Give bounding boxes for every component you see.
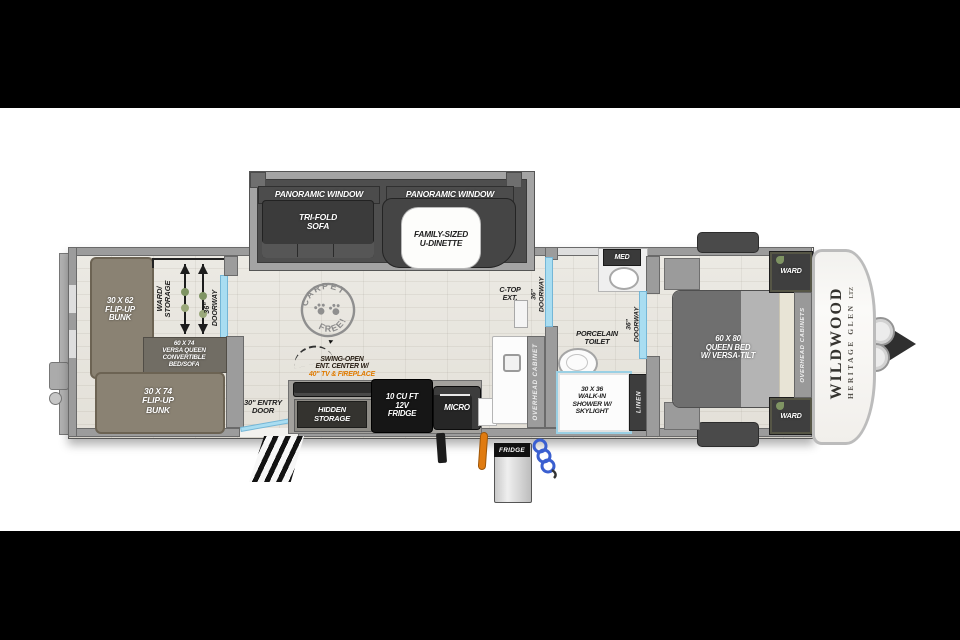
top-letterbox-band	[0, 0, 960, 108]
rear-wall-window-1	[69, 285, 76, 313]
rear-jack-wheel	[49, 392, 62, 405]
ward-plant-icon	[776, 402, 784, 410]
queen-bed	[672, 290, 798, 408]
entry-steps	[249, 436, 307, 482]
kitchen-counter	[492, 336, 529, 424]
hanging-clothes-icon	[196, 262, 210, 336]
bath-sink	[609, 267, 639, 290]
top-wall-window	[556, 248, 602, 255]
hidden-storage-inner	[298, 402, 366, 427]
countertop-extension-flap	[514, 300, 528, 328]
kitchen-sink	[503, 354, 521, 372]
tv-entertainment-center	[293, 382, 373, 397]
bath-bed-wall-lower	[646, 356, 660, 437]
rear-wall-window-2	[69, 330, 76, 358]
galley-bath-doorway-opening	[546, 258, 552, 326]
floorplan-image: PANORAMIC WINDOW PANORAMIC WINDOW TRI-FO…	[0, 0, 960, 640]
slideout-corner-left	[250, 172, 266, 188]
tri-fold-sofa	[262, 200, 374, 258]
ward-plant-icon	[776, 256, 784, 264]
bedroom-cabinet-top	[664, 258, 700, 290]
bunk-wall-upper	[224, 256, 238, 276]
hanging-clothes-icon	[178, 262, 192, 336]
versa-queen-sofa	[143, 337, 227, 373]
top-wall-left-segment	[68, 247, 256, 256]
flip-up-bunk-bottom	[95, 372, 225, 434]
sofa-cushion-seam-1	[297, 244, 298, 257]
exterior-fridge-label: FRIDGE	[499, 447, 525, 454]
bunk-wall-lower	[226, 336, 244, 428]
wheel-well-top	[698, 233, 758, 252]
fridge-12v	[372, 380, 432, 432]
sofa-cushion-seam-2	[333, 244, 334, 257]
front-cap	[812, 249, 876, 445]
bed-mid-section	[741, 291, 779, 407]
bath-bed-doorway-opening	[640, 292, 646, 358]
kitchen-overhead-cabinet	[527, 336, 545, 428]
paw-print-icon	[313, 298, 342, 321]
medicine-cabinet	[604, 250, 640, 265]
water-hose-coil-icon	[528, 436, 560, 480]
wheel-well-bottom	[698, 423, 758, 446]
slideout-corner-right	[506, 172, 522, 188]
rear-stabilizer-jack	[49, 362, 69, 390]
bedroom-overhead-cabinets	[794, 292, 812, 398]
toilet-seat-ring	[566, 354, 588, 371]
walk-in-shower	[556, 371, 632, 434]
bottom-letterbox-band	[0, 531, 960, 640]
power-cord	[479, 433, 487, 469]
microwave-door-line	[440, 394, 470, 396]
u-dinette-table	[402, 208, 480, 268]
bunk-doorway-opening	[221, 276, 227, 340]
bath-bed-wall-upper	[646, 256, 660, 294]
bed-foot-section	[673, 291, 741, 407]
